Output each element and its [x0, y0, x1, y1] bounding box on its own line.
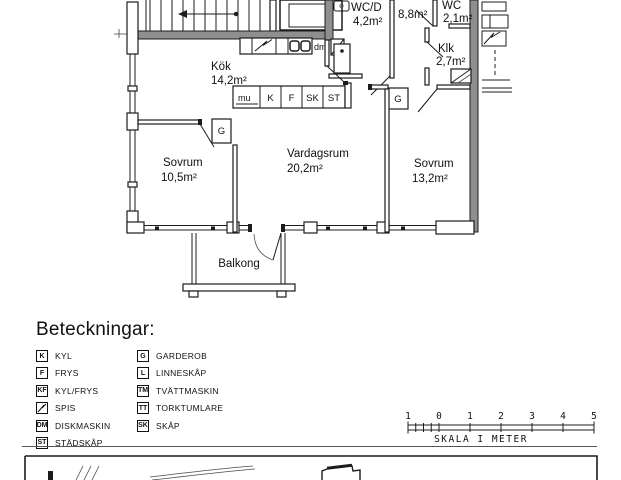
hatched-cabinet	[451, 69, 471, 83]
stair-direction-arrow	[178, 10, 238, 18]
svg-text:2: 2	[498, 411, 504, 422]
torktumlare-symbol: TT	[137, 402, 149, 414]
scale-bar: 1 0 1 2 3 4 5 SKALA I METER	[392, 409, 608, 447]
room-label-balcony: Balkong	[218, 258, 260, 270]
room-label-bedroom2: Sovrum	[414, 158, 454, 170]
room-label-bedroom1: Sovrum	[163, 157, 203, 169]
panel-border	[25, 456, 597, 480]
room-label-kok: Kök	[211, 61, 231, 73]
floor-plan-page: dm	[0, 0, 621, 480]
site-plan-panel	[24, 454, 599, 480]
legend-item-stadskap: ST STÄDSKÅP	[36, 437, 137, 449]
neighbour-fragments	[482, 2, 512, 92]
cleaning-closet-box-label: ST	[328, 93, 340, 104]
kyl-symbol: K	[36, 350, 48, 362]
svg-text:4: 4	[560, 411, 566, 422]
toilet-icon	[334, 44, 350, 73]
room-area-wcd: 4,2m²	[353, 16, 383, 28]
room-label-klk: Klk	[438, 43, 454, 55]
legend-item-skap: SK SKÅP	[137, 420, 223, 432]
wardrobe-box-bedroom2: G	[388, 88, 408, 109]
frys-symbol: F	[36, 367, 48, 379]
diskmaskin-symbol: DM	[36, 420, 48, 432]
svg-text:3: 3	[529, 411, 535, 422]
left-exterior-wall	[127, 2, 138, 232]
wcd-room	[325, 0, 394, 95]
spis-icon	[36, 402, 48, 414]
svg-text:1: 1	[405, 411, 411, 422]
svg-text:G: G	[218, 126, 225, 137]
wardrobe-box-bedroom1: G	[212, 119, 231, 143]
legend-item-frys: F FRYS	[36, 367, 137, 379]
room-label-livingroom: Vardagsrum	[287, 148, 349, 160]
svg-text:5: 5	[591, 411, 597, 422]
skap-symbol: SK	[137, 420, 149, 432]
svg-text:1: 1	[467, 411, 473, 422]
stair-divider-wall	[270, 0, 276, 31]
legend-item-garderob: G GARDEROB	[137, 350, 223, 362]
room-area-bedroom1: 10,5m²	[161, 172, 197, 184]
legend-item-diskmaskin: DM DISKMASKIN	[36, 420, 137, 432]
scale-caption: SKALA I METER	[434, 434, 528, 445]
kylfrys-symbol: KF	[36, 385, 48, 397]
legend-item-kylfrys: KF KYL/FRYS	[36, 385, 137, 397]
cupboard-box-label: SK	[306, 93, 319, 104]
freezer-box-label: F	[289, 93, 295, 104]
room-label-wc: WC	[442, 0, 461, 12]
svg-text:G: G	[394, 94, 401, 105]
section-divider	[22, 446, 597, 447]
counter-mu-label: mu	[238, 93, 251, 103]
legend: Beteckningar: K KYL F FRYS KF KYL/FRYS S…	[36, 319, 223, 454]
svg-text:0: 0	[436, 411, 442, 422]
stadskap-symbol: ST	[36, 437, 48, 449]
room-area-hall: 8,8m²	[398, 9, 428, 21]
legend-item-kyl: K KYL	[36, 350, 137, 362]
fridge-box-label: K	[267, 93, 274, 104]
garderob-symbol: G	[137, 350, 149, 362]
kitchen-bedroom1-wall: G	[138, 119, 231, 147]
bedroom2-door	[418, 89, 437, 112]
dimension-tick	[114, 29, 127, 38]
legend-title: Beteckningar:	[36, 319, 223, 341]
livingroom-bedroom2-wall	[385, 89, 389, 232]
tvattmaskin-symbol: TM	[137, 385, 149, 397]
site-plan-sketch	[48, 465, 360, 480]
room-area-klk: 2,7m²	[436, 56, 466, 68]
kitchen-appliance-counter: mu K F SK ST	[233, 81, 351, 108]
linneskap-symbol: L	[137, 367, 149, 379]
room-area-kok: 14,2m²	[211, 75, 247, 87]
staircase	[146, 0, 260, 31]
scale-bar-ruler	[408, 422, 594, 434]
legend-item-linneskap: L LINNESKÅP	[137, 367, 223, 379]
room-area-bedroom2: 13,2m²	[412, 173, 448, 185]
bottom-exterior-wall	[127, 221, 474, 234]
legend-item-spis: SPIS	[36, 402, 137, 414]
room-area-livingroom: 20,2m²	[287, 163, 323, 175]
hall-bedroom2-wall: G	[368, 84, 470, 112]
floor-plan-drawing: dm	[0, 0, 621, 310]
room-area-wc: 2,1m²	[443, 13, 473, 25]
room-label-wcd: WC/D	[351, 2, 382, 14]
legend-item-torktumlare: TT TORKTUMLARE	[137, 402, 223, 414]
bedroom1-livingroom-wall	[233, 145, 237, 232]
balcony-door	[254, 233, 281, 260]
bedroom2-window	[436, 221, 474, 234]
legend-item-tvattmaskin: TM TVÄTTMASKIN	[137, 385, 223, 397]
